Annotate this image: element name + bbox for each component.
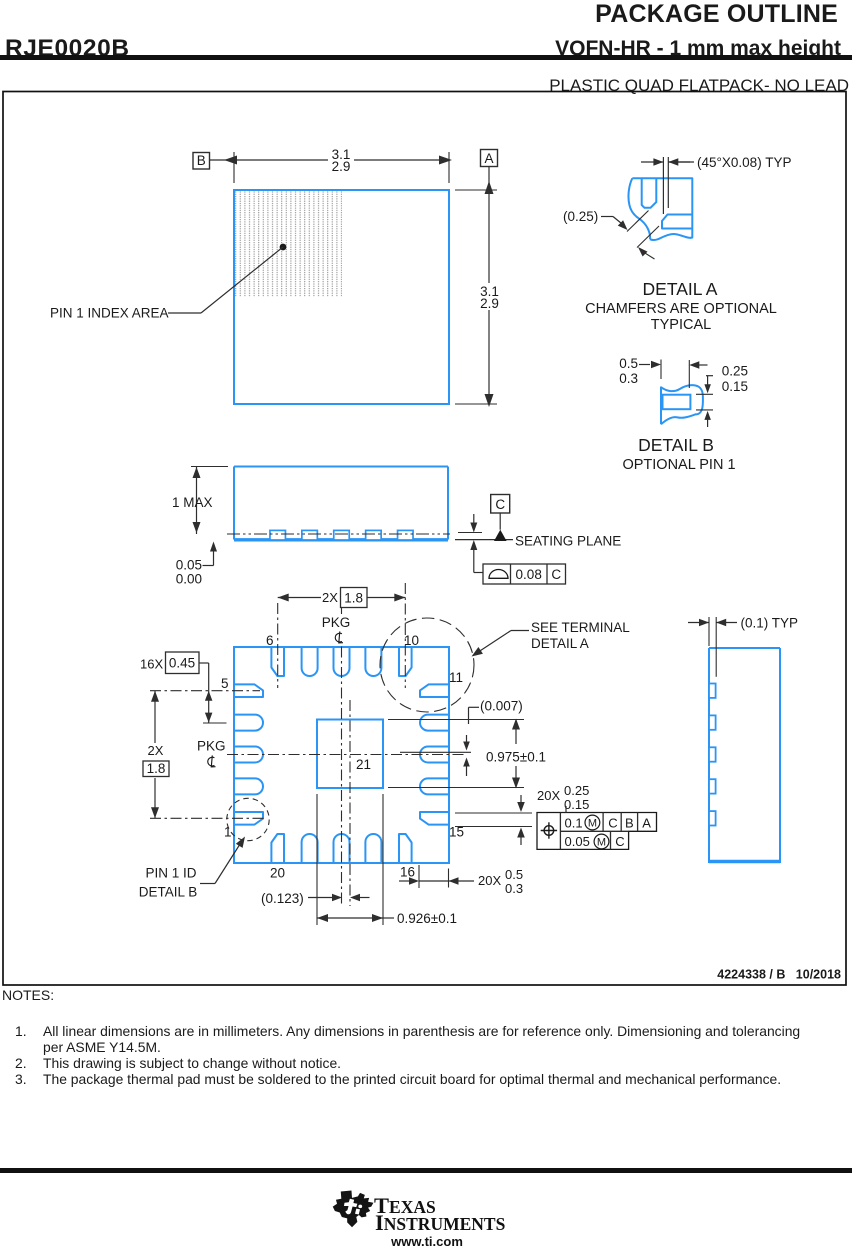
svg-text:21: 21 <box>356 757 371 772</box>
svg-text:0.3: 0.3 <box>505 881 523 896</box>
svg-text:(0.25): (0.25) <box>563 209 598 224</box>
svg-text:DETAIL B: DETAIL B <box>638 435 714 455</box>
svg-text:PKG: PKG <box>322 615 351 630</box>
svg-text:DETAIL A: DETAIL A <box>643 279 718 299</box>
svg-text:C: C <box>495 497 505 512</box>
svg-text:5: 5 <box>221 676 229 691</box>
svg-text:0.926±0.1: 0.926±0.1 <box>397 911 457 926</box>
svg-text:SEATING PLANE: SEATING PLANE <box>515 534 621 549</box>
svg-text:M: M <box>588 817 597 829</box>
svg-text:16X: 16X <box>140 657 163 672</box>
svg-text:TYPICAL: TYPICAL <box>651 317 711 333</box>
svg-text:C: C <box>551 567 561 582</box>
svg-text:0.08: 0.08 <box>516 567 542 582</box>
svg-text:1.8: 1.8 <box>147 761 166 776</box>
svg-text:4224338 / B 10/2018: 4224338 / B 10/2018 <box>717 968 841 982</box>
svg-text:A: A <box>484 151 493 166</box>
svg-text:M: M <box>597 836 606 848</box>
svg-text:2X: 2X <box>322 590 338 605</box>
svg-text:6: 6 <box>266 633 274 648</box>
svg-text:PKG: PKG <box>197 739 226 754</box>
svg-text:0.15: 0.15 <box>564 797 589 812</box>
svg-text:0.00: 0.00 <box>176 572 202 587</box>
svg-text:OPTIONAL PIN 1: OPTIONAL PIN 1 <box>622 457 735 473</box>
svg-text:PIN 1 ID: PIN 1 ID <box>145 866 196 881</box>
svg-text:11: 11 <box>449 670 463 685</box>
svg-text:20: 20 <box>270 866 285 881</box>
svg-text:2.9: 2.9 <box>332 159 351 174</box>
svg-text:0.25: 0.25 <box>722 364 748 379</box>
svg-text:20X: 20X <box>537 788 560 803</box>
svg-text:(0.1) TYP: (0.1) TYP <box>741 616 799 631</box>
svg-text:A: A <box>642 816 651 831</box>
svg-text:0.05: 0.05 <box>565 834 590 849</box>
svg-text:0.45: 0.45 <box>169 656 195 671</box>
svg-text:C: C <box>615 834 624 849</box>
svg-text:PIN 1 INDEX AREA: PIN 1 INDEX AREA <box>50 306 169 321</box>
svg-text:1.8: 1.8 <box>344 591 363 606</box>
svg-text:2X: 2X <box>148 743 164 758</box>
svg-text:B: B <box>197 153 206 168</box>
svg-text:www.ti.com: www.ti.com <box>390 1234 463 1246</box>
svg-text:0.1: 0.1 <box>565 816 583 831</box>
svg-text:(0.007): (0.007) <box>480 699 523 714</box>
svg-text:CHAMFERS ARE OPTIONAL: CHAMFERS ARE OPTIONAL <box>585 301 777 317</box>
svg-text:16: 16 <box>400 865 415 880</box>
svg-text:0.5: 0.5 <box>619 356 638 371</box>
svg-text:INSTRUMENTS: INSTRUMENTS <box>375 1210 505 1235</box>
svg-text:DETAIL A: DETAIL A <box>531 636 589 651</box>
svg-text:(45°X0.08) TYP: (45°X0.08) TYP <box>697 155 791 170</box>
svg-text:B: B <box>625 816 634 831</box>
svg-text:(0.123): (0.123) <box>261 891 304 906</box>
svg-text:2.9: 2.9 <box>480 296 499 311</box>
svg-text:0.3: 0.3 <box>619 371 638 386</box>
svg-text:0.5: 0.5 <box>505 867 523 882</box>
svg-text:0.15: 0.15 <box>722 379 748 394</box>
svg-text:0.975±0.1: 0.975±0.1 <box>486 750 546 765</box>
svg-text:SEE TERMINAL: SEE TERMINAL <box>531 620 630 635</box>
svg-text:20X: 20X <box>478 873 501 888</box>
svg-text:10: 10 <box>404 633 419 648</box>
svg-text:0.25: 0.25 <box>564 783 589 798</box>
svg-text:0.05: 0.05 <box>176 558 202 573</box>
svg-text:DETAIL B: DETAIL B <box>139 885 198 900</box>
svg-text:1 MAX: 1 MAX <box>172 495 213 510</box>
svg-text:C: C <box>608 816 617 831</box>
